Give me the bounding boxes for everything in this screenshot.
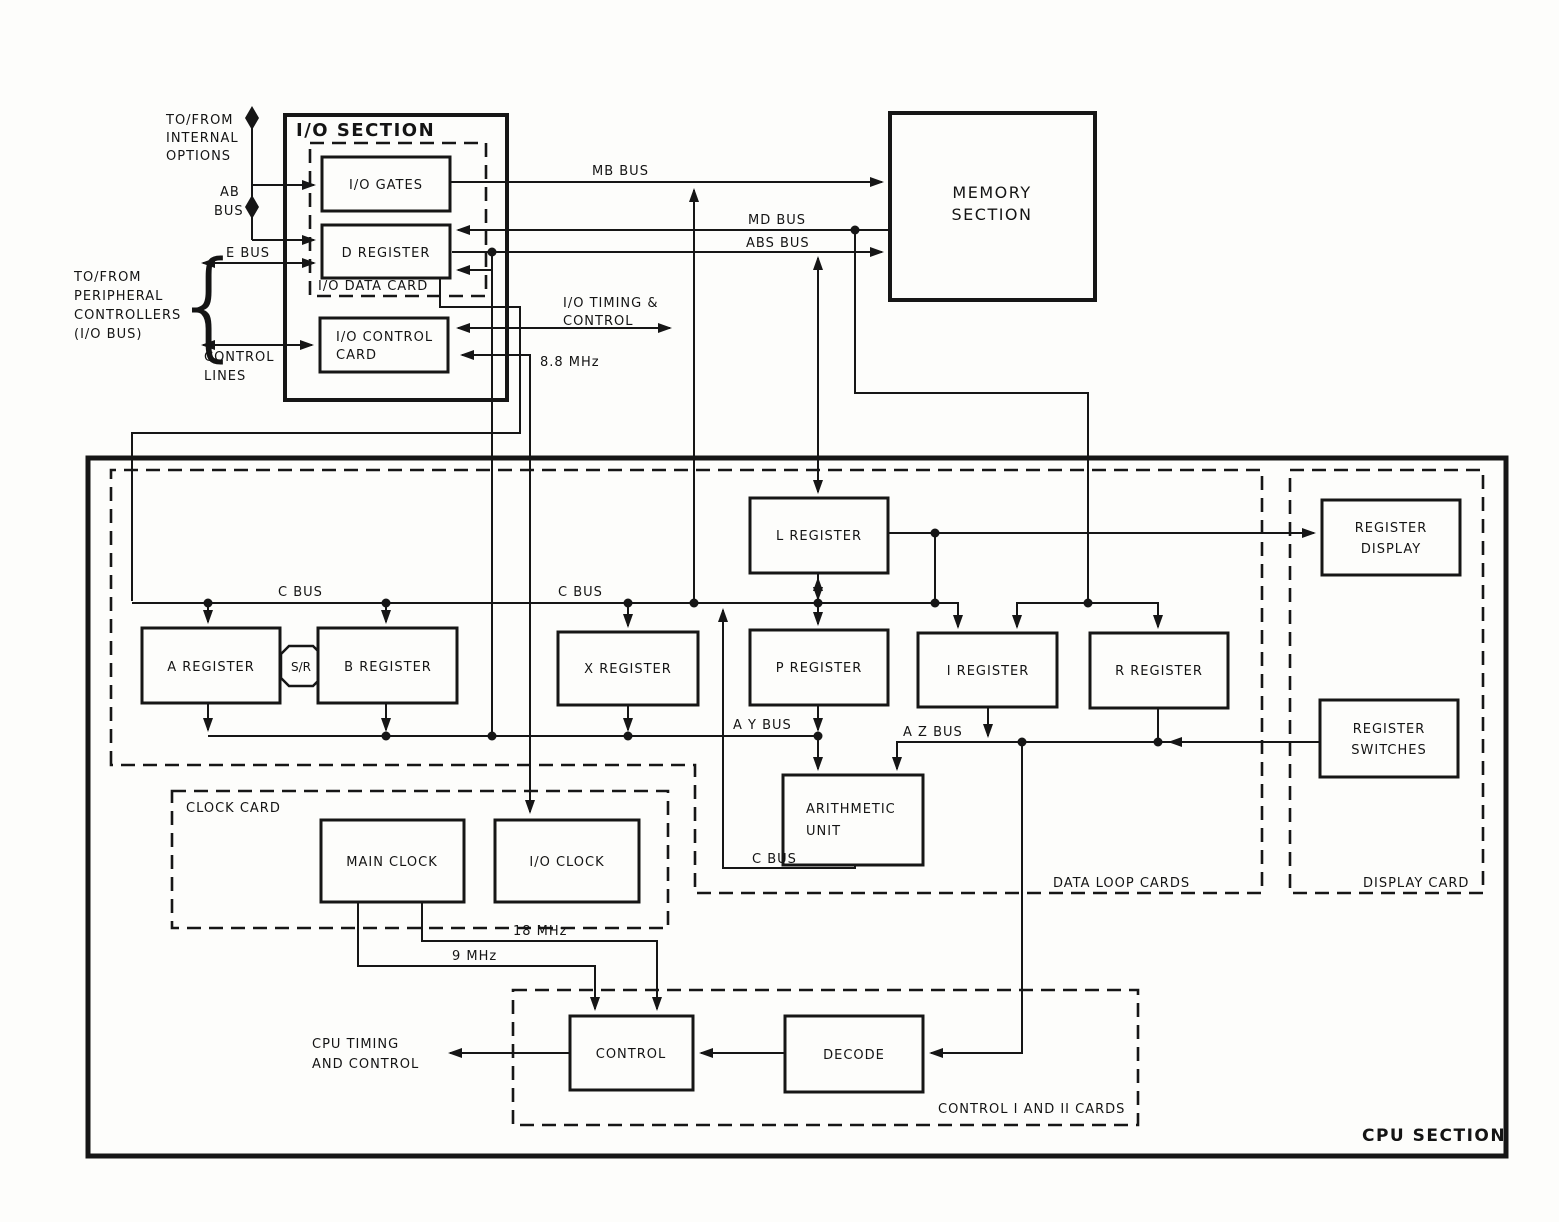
cpu-io-block-diagram: I/O SECTION MEMORY SECTION CPU SECTION I… [0, 0, 1559, 1222]
data-loop-cards-label: DATA LOOP CARDS [1053, 876, 1190, 891]
register-display-box [1322, 500, 1460, 575]
main-clock-label: MAIN CLOCK [346, 855, 438, 870]
block-diagram-page: I/O SECTION MEMORY SECTION CPU SECTION I… [0, 0, 1559, 1222]
control-lines-label-line2: LINES [204, 369, 246, 384]
internal-options-line2: INTERNAL [166, 131, 239, 146]
display-card-label: DISPLAY CARD [1363, 876, 1469, 891]
freq-9mhz-label: 9 MHz [452, 949, 497, 964]
peripheral-line1: TO/FROM [73, 270, 142, 285]
p-register-label: P REGISTER [776, 661, 863, 676]
io-data-card-label: I/O DATA CARD [318, 279, 428, 294]
x-register-label: X REGISTER [584, 662, 672, 677]
io-control-card-label-line1: I/O CONTROL [336, 330, 433, 345]
c-bus-label-1: C BUS [278, 585, 323, 600]
io-timing-label-line1: I/O TIMING & [563, 296, 658, 311]
io-timing-label-line2: CONTROL [563, 314, 633, 329]
control-lines-label-line1: CONTROL [204, 350, 274, 365]
a-register-label: A REGISTER [167, 660, 255, 675]
arithmetic-unit-box [783, 775, 923, 865]
cpu-section-title: CPU SECTION [1362, 1126, 1506, 1146]
md-bus-label: MD BUS [748, 213, 806, 228]
io-gates-label: I/O GATES [349, 178, 423, 193]
connector-diamond-ab [245, 195, 259, 219]
ay-bus-label: A Y BUS [733, 718, 792, 733]
register-display-label-line1: REGISTER [1355, 521, 1428, 536]
memory-title-line2: SECTION [952, 205, 1033, 224]
c-bus-label-2: C BUS [558, 585, 603, 600]
io-section-title: I/O SECTION [296, 120, 435, 141]
internal-options-line1: TO/FROM [165, 113, 234, 128]
io-control-card-box [320, 318, 448, 372]
ab-bus-label-line1: AB [220, 185, 240, 200]
r-register-label: R REGISTER [1115, 664, 1203, 679]
i-register-label: I REGISTER [947, 664, 1030, 679]
peripheral-line3: CONTROLLERS [74, 308, 181, 323]
cpu-timing-label-line2: AND CONTROL [312, 1057, 419, 1072]
c-bus-label-3: C BUS [752, 852, 797, 867]
clock-card-label: CLOCK CARD [186, 801, 281, 816]
peripheral-line2: PERIPHERAL [74, 289, 163, 304]
connector-diamond-top [245, 106, 259, 130]
control-label: CONTROL [596, 1047, 666, 1062]
arithmetic-unit-label-line1: ARITHMETIC [806, 802, 896, 817]
freq-88mhz-label: 8.8 MHz [540, 355, 600, 370]
register-switches-label-line2: SWITCHES [1351, 743, 1426, 758]
arithmetic-unit-label-line2: UNIT [806, 824, 841, 839]
peripheral-line4: (I/O BUS) [74, 327, 142, 342]
d-register-label: D REGISTER [342, 246, 431, 261]
control-cards-label: CONTROL I AND II CARDS [938, 1102, 1125, 1117]
io-clock-label: I/O CLOCK [529, 855, 604, 870]
mb-bus-label: MB BUS [592, 164, 649, 179]
freq-18mhz-label: 18 MHz [513, 924, 568, 939]
register-switches-label-line1: REGISTER [1353, 722, 1426, 737]
io-control-card-label-line2: CARD [336, 348, 377, 363]
b-register-label: B REGISTER [344, 660, 432, 675]
register-switches-box [1320, 700, 1458, 777]
ab-bus-label-line2: BUS [214, 204, 244, 219]
memory-title-line1: MEMORY [952, 183, 1031, 202]
sr-label: S/R [291, 660, 311, 674]
register-display-label-line2: DISPLAY [1361, 542, 1421, 557]
cpu-timing-label-line1: CPU TIMING [312, 1037, 399, 1052]
abs-bus-label: ABS BUS [746, 236, 810, 251]
l-register-label: L REGISTER [776, 529, 862, 544]
az-bus-label: A Z BUS [903, 725, 963, 740]
decode-label: DECODE [823, 1048, 885, 1063]
internal-options-line3: OPTIONS [166, 149, 231, 164]
